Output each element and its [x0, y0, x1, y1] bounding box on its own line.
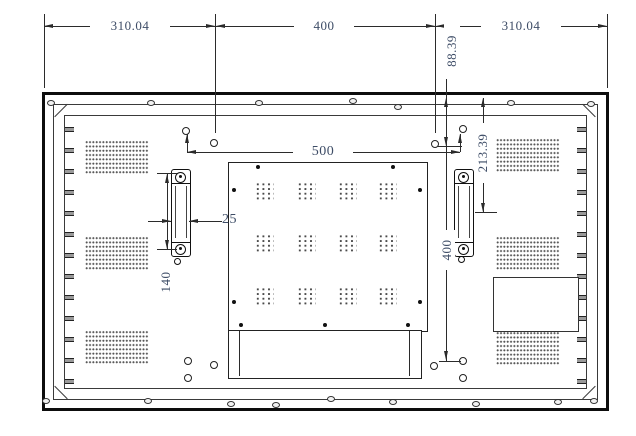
dim-arrow	[444, 351, 448, 360]
mount-hole	[210, 361, 218, 369]
dim-label-top-left-margin: 310.04	[90, 18, 170, 34]
vent-grid-right-top	[496, 138, 560, 172]
plate-vent-cluster	[338, 234, 357, 254]
plate-screw	[256, 165, 260, 169]
plate-screw	[323, 323, 327, 327]
dim-arrow	[44, 24, 53, 28]
mount-hole	[459, 125, 467, 133]
vent-grid-left-middle	[85, 236, 149, 270]
bezel-screw	[47, 100, 55, 106]
handle-mount-hole	[458, 256, 465, 263]
dim-label-vertical-hole-span: 400	[439, 230, 455, 270]
dim-tick	[475, 212, 497, 213]
handle-screw	[458, 244, 469, 255]
vent-grid-left-bottom	[85, 330, 149, 364]
vent-grid-left-top	[85, 140, 149, 174]
bezel-screw	[227, 401, 235, 407]
bezel-screw	[507, 100, 515, 106]
plate-vent-cluster	[338, 182, 357, 202]
bezel-screw	[587, 101, 595, 107]
right-slot-column	[577, 127, 586, 393]
plate-vent-cluster	[297, 287, 316, 307]
plate-screw	[406, 323, 410, 327]
plate-vent-cluster	[255, 287, 274, 307]
dim-tick	[439, 361, 461, 362]
label-plate-box	[493, 277, 579, 332]
ext-line-hole-right	[435, 14, 436, 133]
dim-arrow	[165, 240, 169, 249]
handle-screw	[458, 172, 469, 183]
dim-tick	[157, 249, 177, 250]
bezel-screw	[272, 402, 280, 408]
left-handle	[171, 169, 191, 257]
plate-screw	[391, 165, 395, 169]
handle-rail	[469, 186, 470, 238]
dim-arrow	[481, 203, 485, 212]
dim-label-handle-width: 25	[222, 212, 248, 228]
mount-hole	[184, 374, 192, 382]
dim-arrow	[165, 174, 169, 183]
dim-label-top-hole-span: 400	[294, 18, 354, 34]
dim-arrow	[216, 24, 225, 28]
plate-vent-cluster	[338, 287, 357, 307]
bezel-screw	[389, 399, 397, 405]
ext-line-right-edge	[607, 14, 608, 88]
bezel-screw	[472, 401, 480, 407]
bezel-screw	[42, 398, 50, 404]
dim-label-top-right-margin: 310.04	[481, 18, 561, 34]
plate-vent-cluster	[378, 287, 397, 307]
dim-label-outer-hole-span: 500	[293, 144, 353, 160]
mount-hole	[459, 374, 467, 382]
left-slot-column	[65, 127, 74, 393]
plate-vent-cluster	[297, 234, 316, 254]
dim-arrow	[426, 24, 435, 28]
bezel-screw	[147, 100, 155, 106]
dim-label-edge-to-top-hole-row: 88.39	[444, 23, 460, 79]
right-handle	[454, 169, 474, 257]
dim-arrow	[481, 98, 485, 107]
dim-arrow	[185, 134, 189, 143]
dim-line-vertical-right	[446, 30, 447, 362]
dim-label-edge-to-handle-center: 213.39	[475, 123, 491, 183]
bezel-screw	[255, 100, 263, 106]
dim-arrow	[189, 219, 198, 223]
handle-cap-line	[455, 183, 473, 184]
dim-tick	[157, 173, 177, 174]
terminal-cover-box	[228, 330, 422, 379]
plate-screw	[418, 300, 422, 304]
handle-cap-line	[455, 242, 473, 243]
terminal-box-rail-left	[239, 331, 240, 376]
plate-screw	[239, 323, 243, 327]
dim-line-140	[167, 174, 168, 249]
dim-arrow	[598, 24, 607, 28]
plate-vent-cluster	[255, 234, 274, 254]
dim-arrow	[187, 150, 196, 154]
dim-arrow	[206, 24, 215, 28]
plate-vent-cluster	[378, 182, 397, 202]
bezel-screw	[554, 399, 562, 405]
vent-grid-right-bottom	[496, 331, 560, 365]
handle-mount-hole	[174, 258, 181, 265]
handle-cap-line	[172, 242, 190, 243]
dim-arrow	[444, 137, 448, 146]
mount-hole	[210, 139, 218, 147]
handle-rail	[186, 186, 187, 238]
mount-hole	[184, 357, 192, 365]
dim-arrow	[444, 98, 448, 107]
bezel-screw	[144, 398, 152, 404]
dim-label-handle-length: 140	[158, 262, 174, 302]
bezel-screw	[327, 396, 335, 402]
terminal-box-rail-right	[409, 331, 410, 376]
plate-vent-cluster	[378, 234, 397, 254]
dim-arrow	[451, 150, 460, 154]
mount-hole	[430, 362, 438, 370]
ext-line-hole-left	[215, 14, 216, 133]
handle-rail	[458, 186, 459, 238]
handle-cap-line	[172, 183, 190, 184]
dim-arrow	[162, 219, 171, 223]
bezel-screw	[394, 104, 402, 110]
dim-tick	[438, 146, 462, 147]
bezel-screw	[590, 398, 598, 404]
plate-screw	[232, 300, 236, 304]
plate-vent-cluster	[255, 182, 274, 202]
bezel-screw	[349, 98, 357, 104]
technical-drawing-canvas: 310.04 400 310.04 88.39 400 213.39 500 1…	[0, 0, 636, 436]
vent-grid-right-middle	[496, 236, 560, 270]
plate-vent-cluster	[297, 182, 316, 202]
handle-rail	[175, 186, 176, 238]
dim-arrow	[458, 134, 462, 143]
plate-screw	[232, 188, 236, 192]
plate-screw	[418, 188, 422, 192]
